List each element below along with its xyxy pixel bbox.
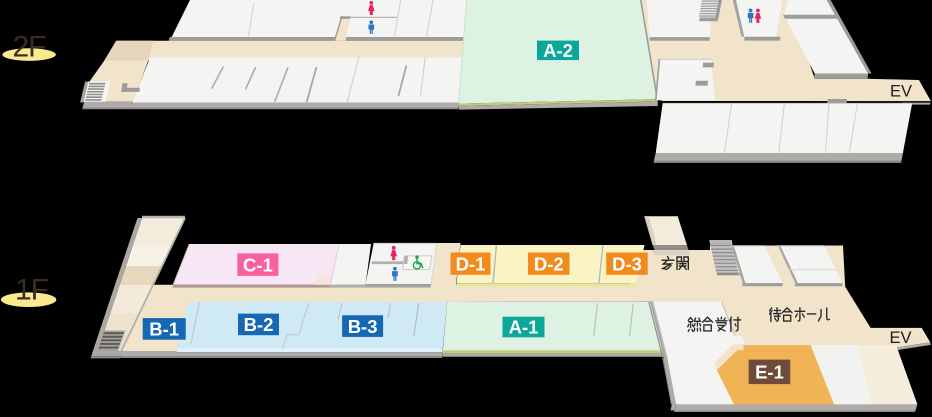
svg-text:EV: EV <box>889 329 911 347</box>
svg-text:D-3: D-3 <box>612 253 642 274</box>
svg-text:A-2: A-2 <box>543 40 573 61</box>
svg-text:B-1: B-1 <box>149 319 179 340</box>
svg-text:A-1: A-1 <box>509 317 539 338</box>
svg-text:E-1: E-1 <box>755 362 784 383</box>
svg-text:B-2: B-2 <box>244 314 274 335</box>
svg-text:2F: 2F <box>13 31 47 64</box>
svg-text:B-3: B-3 <box>348 316 378 337</box>
svg-text:1F: 1F <box>15 274 49 307</box>
svg-text:D-1: D-1 <box>456 253 486 274</box>
svg-text:D-2: D-2 <box>534 253 564 274</box>
svg-text:C-1: C-1 <box>243 254 273 275</box>
svg-text:EV: EV <box>890 83 912 101</box>
